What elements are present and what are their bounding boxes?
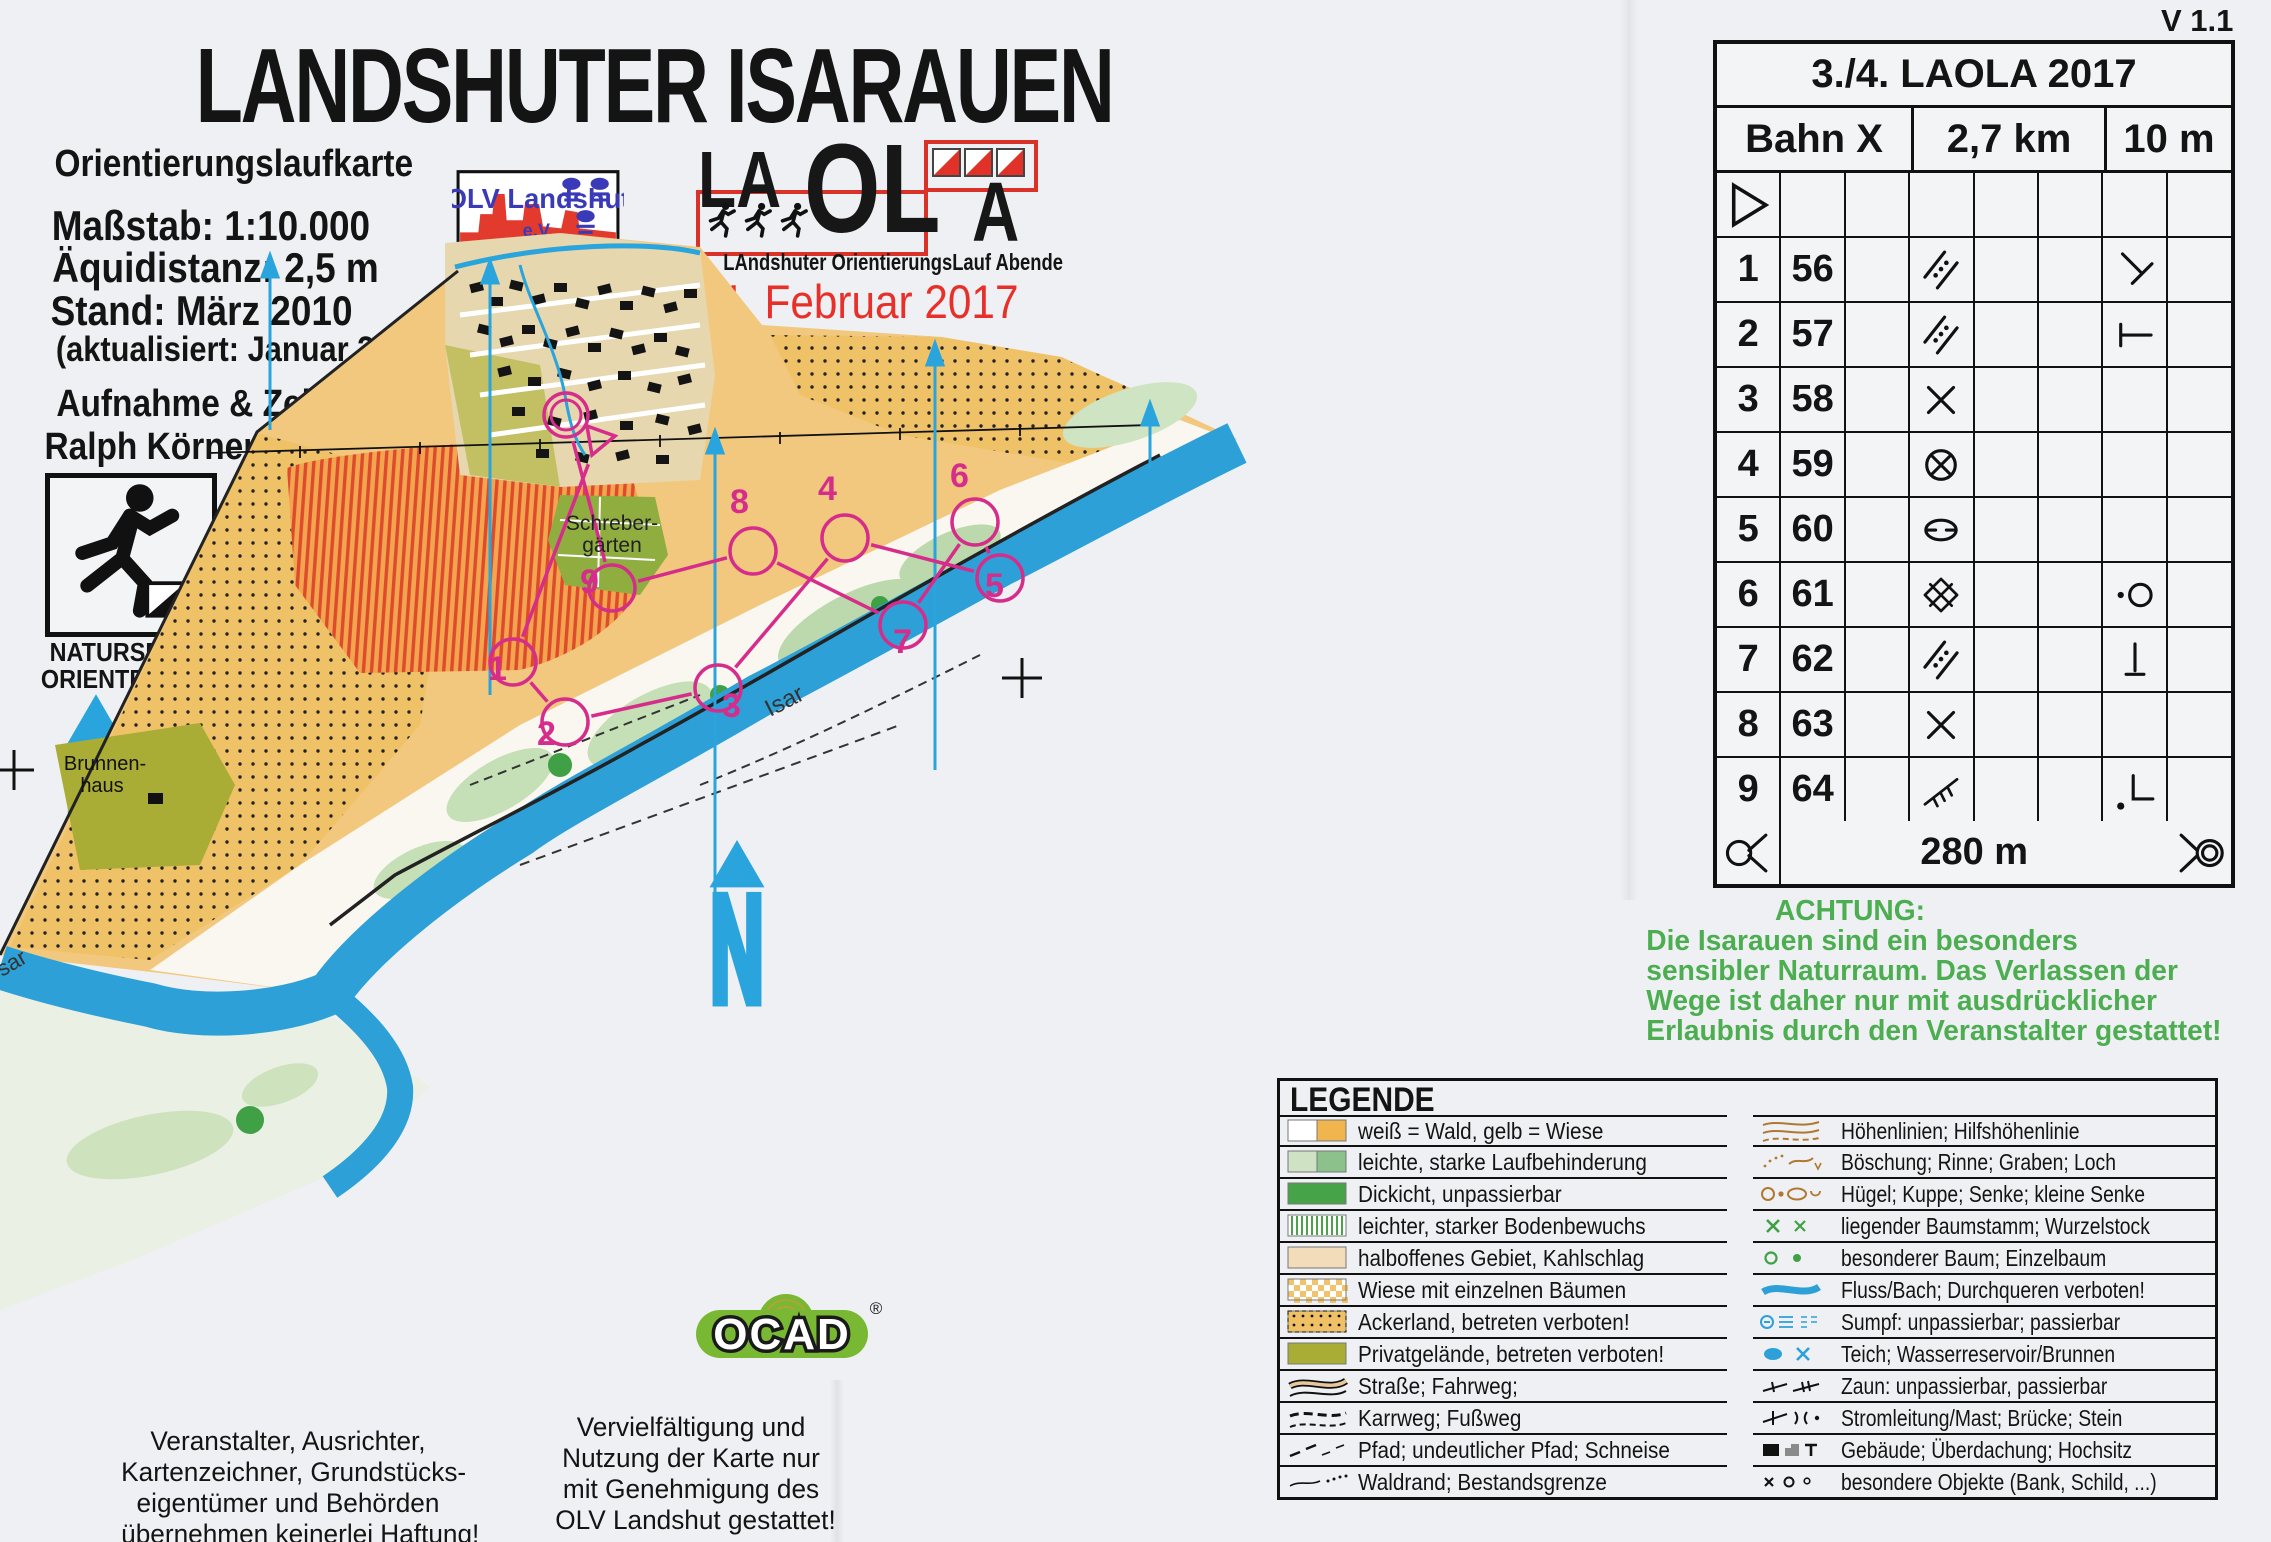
page-title: LANDSHUTER ISARAUEN bbox=[196, 26, 1113, 147]
control-cell bbox=[2103, 433, 2167, 496]
control-cell bbox=[1975, 498, 2039, 561]
legend-label: Pfad; undeutlicher Pfad; Schneise bbox=[1358, 1437, 1670, 1464]
warning-line: Die Isarauen sind ein besonders bbox=[1646, 926, 2053, 956]
road-icon bbox=[1280, 1372, 1358, 1400]
legend-row: leichte, starke Laufbehinderung bbox=[1280, 1147, 1727, 1179]
control-number: 8 bbox=[730, 483, 749, 521]
finish-circles-icon bbox=[2167, 821, 2231, 884]
control-cell: 9 bbox=[1717, 758, 1781, 821]
legend-row: Zaun: unpassierbar, passierbar bbox=[1753, 1371, 2215, 1403]
veg-boundary-icon bbox=[1910, 238, 1974, 301]
control-cell: 8 bbox=[1717, 693, 1781, 756]
control-cell bbox=[1846, 693, 1910, 756]
veg-boundary-icon bbox=[1910, 628, 1974, 691]
control-cell bbox=[1846, 303, 1910, 366]
shield-name: OLV Landshut bbox=[452, 183, 624, 214]
control-cell: 5 bbox=[1717, 498, 1781, 561]
legend-label: leichte, starke Laufbehinderung bbox=[1358, 1149, 1647, 1176]
fence-icon bbox=[1910, 758, 1974, 821]
corner-dot-icon bbox=[2103, 758, 2167, 821]
control-cell bbox=[2039, 498, 2103, 561]
legend-label: besondere Objekte (Bank, Schild, ...) bbox=[1841, 1469, 2157, 1496]
control-cell bbox=[1781, 173, 1845, 236]
control-cell bbox=[1975, 628, 2039, 691]
powerline-icon bbox=[1753, 1404, 1841, 1432]
control-cell bbox=[2168, 368, 2230, 431]
control-cell: 63 bbox=[1781, 693, 1845, 756]
liability-line: Kartenzeichner, Grundstücks- bbox=[121, 1457, 455, 1488]
control-cell: 62 bbox=[1781, 628, 1845, 691]
legend-label: Dickicht, unpassierbar bbox=[1358, 1181, 1562, 1208]
usage-line: OLV Landshut gestattet! bbox=[555, 1505, 827, 1536]
dot-circle-icon bbox=[2103, 563, 2167, 626]
control-cell: 4 bbox=[1717, 433, 1781, 496]
track-icon bbox=[1280, 1404, 1358, 1432]
control-cell bbox=[2039, 433, 2103, 496]
warning-line: sensibler Naturraum. Das Verlassen der bbox=[1646, 956, 2053, 986]
control-cell bbox=[1846, 368, 1910, 431]
legend-row: Sumpf: unpassierbar; passierbar bbox=[1753, 1307, 2215, 1339]
control-cell bbox=[2103, 693, 2167, 756]
control-number: 5 bbox=[985, 567, 1004, 605]
control-cell bbox=[2168, 758, 2230, 821]
control-number: 9 bbox=[580, 563, 599, 601]
building-icon bbox=[1753, 1436, 1841, 1464]
liability-line: übernehmen keinerlei Haftung! bbox=[121, 1519, 455, 1542]
control-row: 156 bbox=[1717, 238, 2231, 303]
river-icon bbox=[1753, 1276, 1841, 1304]
well-label-1: Brunnen- bbox=[64, 753, 146, 775]
control-cell bbox=[1910, 173, 1974, 236]
scanned-orienteering-map: LANDSHUTER ISARAUEN Orientierungslaufkar… bbox=[0, 0, 2271, 1542]
card-finish-row: 280 m bbox=[1717, 821, 2231, 884]
control-cell bbox=[2039, 563, 2103, 626]
control-number: 4 bbox=[818, 470, 837, 508]
legend-label: weiß = Wald, gelb = Wiese bbox=[1358, 1118, 1603, 1145]
control-cell bbox=[1975, 563, 2039, 626]
control-cell: 1 bbox=[1717, 238, 1781, 301]
control-cell bbox=[2168, 498, 2230, 561]
legend-label: halboffenes Gebiet, Kahlschlag bbox=[1358, 1245, 1644, 1272]
control-cell bbox=[1846, 563, 1910, 626]
control-cell: 57 bbox=[1781, 303, 1845, 366]
legend-label: Höhenlinien; Hilfshöhenlinie bbox=[1841, 1118, 2079, 1145]
legend-row: Stromleitung/Mast; Brücke; Stein bbox=[1753, 1403, 2215, 1435]
control-cell bbox=[2039, 693, 2103, 756]
legend-left-column: weiß = Wald, gelb = Wieseleichte, starke… bbox=[1280, 1115, 1727, 1499]
map-canvas: 123456789 Schreber- gärten Isar sar Brun… bbox=[0, 225, 1260, 1415]
control-cell bbox=[1846, 628, 1910, 691]
start-triangle-icon bbox=[1717, 173, 1781, 236]
control-cell bbox=[1846, 238, 1910, 301]
control-cell bbox=[2039, 173, 2103, 236]
legend-row: Hügel; Kuppe; Senke; kleine Senke bbox=[1753, 1179, 2215, 1211]
legend-label: liegender Baumstamm; Wurzelstock bbox=[1841, 1213, 2150, 1240]
legend-row: besondere Objekte (Bank, Schild, ...) bbox=[1753, 1467, 2215, 1499]
control-cell bbox=[1975, 758, 2039, 821]
control-cell bbox=[2168, 693, 2230, 756]
control-cell: 61 bbox=[1781, 563, 1845, 626]
warning-line: Erlaubnis durch den Veranstalter gestatt… bbox=[1646, 1016, 2053, 1046]
legend-row: Fluss/Bach; Durchqueren verboten! bbox=[1753, 1275, 2215, 1307]
control-row: 762 bbox=[1717, 628, 2231, 693]
thicket-icon bbox=[1910, 563, 1974, 626]
legend-row: Böschung; Rinne; Graben; Loch bbox=[1753, 1147, 2215, 1179]
legend-row: Karrweg; Fußweg bbox=[1280, 1403, 1727, 1435]
circle-cross-icon bbox=[1910, 433, 1974, 496]
control-row: 560 bbox=[1717, 498, 2231, 563]
legend-row: Waldrand; Bestandsgrenze bbox=[1280, 1467, 1727, 1499]
contours-icon bbox=[1753, 1117, 1841, 1145]
control-row: 459 bbox=[1717, 433, 2231, 498]
course-length: 2,7 km bbox=[1914, 108, 2107, 170]
control-row: 358 bbox=[1717, 368, 2231, 433]
warning-title: ACHTUNG: bbox=[1646, 896, 2053, 926]
control-cell: 3 bbox=[1717, 368, 1781, 431]
cross-icon bbox=[1910, 368, 1974, 431]
control-cell bbox=[2039, 628, 2103, 691]
legend-row: weiß = Wald, gelb = Wiese bbox=[1280, 1115, 1727, 1147]
control-row bbox=[1717, 173, 2231, 238]
legend-label: besonderer Baum; Einzelbaum bbox=[1841, 1245, 2106, 1272]
orienteering-flag-icon bbox=[996, 148, 1025, 177]
legend-row: halboffenes Gebiet, Kahlschlag bbox=[1280, 1243, 1727, 1275]
legend-row: Gebäude; Überdachung; Hochsitz bbox=[1753, 1435, 2215, 1467]
upright-post-icon bbox=[2103, 628, 2167, 691]
orienteering-flag-icon bbox=[964, 148, 993, 177]
control-cell bbox=[2168, 238, 2230, 301]
legend-row: Dickicht, unpassierbar bbox=[1280, 1179, 1727, 1211]
slope-icon bbox=[1753, 1148, 1841, 1176]
map-subtitle: Orientierungslaufkarte bbox=[54, 143, 413, 186]
legend-row: Pfad; undeutlicher Pfad; Schneise bbox=[1280, 1435, 1727, 1467]
taped-route-icon bbox=[1717, 821, 1781, 884]
legend-label: Gebäude; Überdachung; Hochsitz bbox=[1841, 1437, 2132, 1464]
control-cell: 64 bbox=[1781, 758, 1845, 821]
semiopen-swatch bbox=[1280, 1244, 1358, 1272]
control-cell: 56 bbox=[1781, 238, 1845, 301]
allotments-label-2: gärten bbox=[582, 534, 642, 557]
path-icon bbox=[1280, 1436, 1358, 1464]
control-description-card: 3./4. LAOLA 2017 Bahn X 2,7 km 10 m 1562… bbox=[1713, 40, 2235, 888]
legend-right-column: Höhenlinien; HilfshöhenlinieBöschung; Ri… bbox=[1753, 1115, 2215, 1499]
usage-note: Vervielfältigung und Nutzung der Karte n… bbox=[555, 1412, 827, 1536]
liability-note: Veranstalter, Ausrichter, Kartenzeichner… bbox=[121, 1426, 455, 1542]
control-cell bbox=[1975, 173, 2039, 236]
control-cell: 7 bbox=[1717, 628, 1781, 691]
control-cell bbox=[1975, 303, 2039, 366]
forest-meadow-swatch bbox=[1280, 1117, 1358, 1145]
control-row: 257 bbox=[1717, 303, 2231, 368]
thicket-swatch bbox=[1280, 1180, 1358, 1208]
card-rows: 156257358459560661762863964 bbox=[1717, 173, 2231, 821]
log-icon bbox=[1753, 1212, 1841, 1240]
legend-label: Waldrand; Bestandsgrenze bbox=[1358, 1469, 1607, 1496]
forest-edge-icon bbox=[1280, 1468, 1358, 1496]
legend-row: Höhenlinien; Hilfshöhenlinie bbox=[1753, 1115, 2215, 1147]
version-label: V 1.1 bbox=[2161, 3, 2233, 39]
legend-label: leichter, starker Bodenbewuchs bbox=[1358, 1213, 1646, 1240]
control-row: 964 bbox=[1717, 758, 2231, 821]
control-row: 661 bbox=[1717, 563, 2231, 628]
control-row: 863 bbox=[1717, 693, 2231, 758]
paper-crease bbox=[1620, 0, 1638, 900]
pond-icon bbox=[1753, 1340, 1841, 1368]
legend-row: leichter, starker Bodenbewuchs bbox=[1280, 1211, 1727, 1243]
control-cell: 60 bbox=[1781, 498, 1845, 561]
control-cell: 58 bbox=[1781, 368, 1845, 431]
legend-row: Straße; Fahrweg; bbox=[1280, 1371, 1727, 1403]
course-climb: 10 m bbox=[2107, 108, 2231, 170]
usage-line: Vervielfältigung und bbox=[555, 1412, 827, 1443]
control-number: 2 bbox=[537, 715, 556, 753]
legend-row: liegender Baumstamm; Wurzelstock bbox=[1753, 1211, 2215, 1243]
usage-line: mit Genehmigung des bbox=[555, 1474, 827, 1505]
depression-icon bbox=[1910, 498, 1974, 561]
legend-row: besonderer Baum; Einzelbaum bbox=[1753, 1243, 2215, 1275]
control-number: 3 bbox=[722, 687, 741, 725]
control-cell bbox=[1975, 238, 2039, 301]
bend-icon bbox=[2103, 238, 2167, 301]
control-cell bbox=[1975, 368, 2039, 431]
well-label-2: haus bbox=[80, 775, 123, 797]
card-title: 3./4. LAOLA 2017 bbox=[1717, 44, 2231, 108]
legend-label: Wiese mit einzelnen Bäumen bbox=[1358, 1277, 1626, 1304]
meadow-trees-swatch bbox=[1280, 1276, 1358, 1304]
control-cell bbox=[1975, 693, 2039, 756]
legend-label: Teich; Wasserreservoir/Brunnen bbox=[1841, 1341, 2115, 1368]
control-number: 6 bbox=[950, 457, 969, 495]
legend-row: Ackerland, betreten verboten! bbox=[1280, 1307, 1727, 1339]
orienteering-flag-icon bbox=[932, 148, 961, 177]
legend-label: Sumpf: unpassierbar; passierbar bbox=[1841, 1309, 2120, 1336]
farmland-swatch bbox=[1280, 1308, 1358, 1336]
legend-label: Hügel; Kuppe; Senke; kleine Senke bbox=[1841, 1181, 2145, 1208]
control-cell: 6 bbox=[1717, 563, 1781, 626]
control-cell bbox=[2103, 173, 2167, 236]
knoll-icon bbox=[1753, 1180, 1841, 1208]
control-cell bbox=[1846, 173, 1910, 236]
runnability-swatch bbox=[1280, 1148, 1358, 1176]
control-cell bbox=[2168, 173, 2230, 236]
allotments-label-1: Schreber- bbox=[566, 512, 658, 535]
control-cell bbox=[2168, 303, 2230, 366]
course-name: Bahn X bbox=[1717, 108, 1914, 170]
tree-icon bbox=[1753, 1244, 1841, 1272]
control-cell bbox=[2103, 498, 2167, 561]
cross-icon bbox=[1910, 693, 1974, 756]
legend-row: Privatgelände, betreten verboten! bbox=[1280, 1339, 1727, 1371]
finish-distance: 280 m bbox=[1781, 821, 2167, 884]
junction-icon bbox=[2103, 303, 2167, 366]
liability-line: Veranstalter, Ausrichter, bbox=[121, 1426, 455, 1457]
warning-note: ACHTUNG: Die Isarauen sind ein besonders… bbox=[1646, 896, 2053, 1046]
control-cell bbox=[2039, 303, 2103, 366]
legend-label: Privatgelände, betreten verboten! bbox=[1358, 1341, 1664, 1368]
private-swatch bbox=[1280, 1340, 1358, 1368]
legend-label: Ackerland, betreten verboten! bbox=[1358, 1309, 1630, 1336]
control-cell bbox=[1846, 758, 1910, 821]
control-cell bbox=[2168, 433, 2230, 496]
legend-box: LEGENDE weiß = Wald, gelb = Wieseleichte… bbox=[1277, 1078, 2218, 1500]
control-cell: 2 bbox=[1717, 303, 1781, 366]
control-cell bbox=[2168, 563, 2230, 626]
control-cell bbox=[1846, 433, 1910, 496]
legend-label: Karrweg; Fußweg bbox=[1358, 1405, 1521, 1432]
control-cell bbox=[2103, 368, 2167, 431]
legend-row: Wiese mit einzelnen Bäumen bbox=[1280, 1275, 1727, 1307]
legend-label: Straße; Fahrweg; bbox=[1358, 1373, 1518, 1400]
control-number: 7 bbox=[893, 623, 912, 661]
warning-line: Wege ist daher nur mit ausdrücklicher bbox=[1646, 986, 2053, 1016]
usage-line: Nutzung der Karte nur bbox=[555, 1443, 827, 1474]
control-cell bbox=[2039, 238, 2103, 301]
control-number: 1 bbox=[488, 650, 507, 688]
control-cell bbox=[2168, 628, 2230, 691]
fence-icon bbox=[1753, 1372, 1841, 1400]
marsh-icon bbox=[1753, 1308, 1841, 1336]
legend-label: Zaun: unpassierbar, passierbar bbox=[1841, 1373, 2107, 1400]
legend-label: Böschung; Rinne; Graben; Loch bbox=[1841, 1149, 2116, 1176]
control-cell: 59 bbox=[1781, 433, 1845, 496]
liability-line: eigentümer und Behörden bbox=[121, 1488, 455, 1519]
control-cell bbox=[2039, 758, 2103, 821]
legend-label: Fluss/Bach; Durchqueren verboten! bbox=[1841, 1277, 2145, 1304]
control-cell bbox=[2039, 368, 2103, 431]
card-course-row: Bahn X 2,7 km 10 m bbox=[1717, 108, 2231, 173]
legend-label: Stromleitung/Mast; Brücke; Stein bbox=[1841, 1405, 2122, 1432]
objects-icon bbox=[1753, 1468, 1841, 1496]
legend-row: Teich; Wasserreservoir/Brunnen bbox=[1753, 1339, 2215, 1371]
veg-boundary-icon bbox=[1910, 303, 1974, 366]
control-cell bbox=[1975, 433, 2039, 496]
control-cell bbox=[1846, 498, 1910, 561]
undergrowth-swatch bbox=[1280, 1212, 1358, 1240]
